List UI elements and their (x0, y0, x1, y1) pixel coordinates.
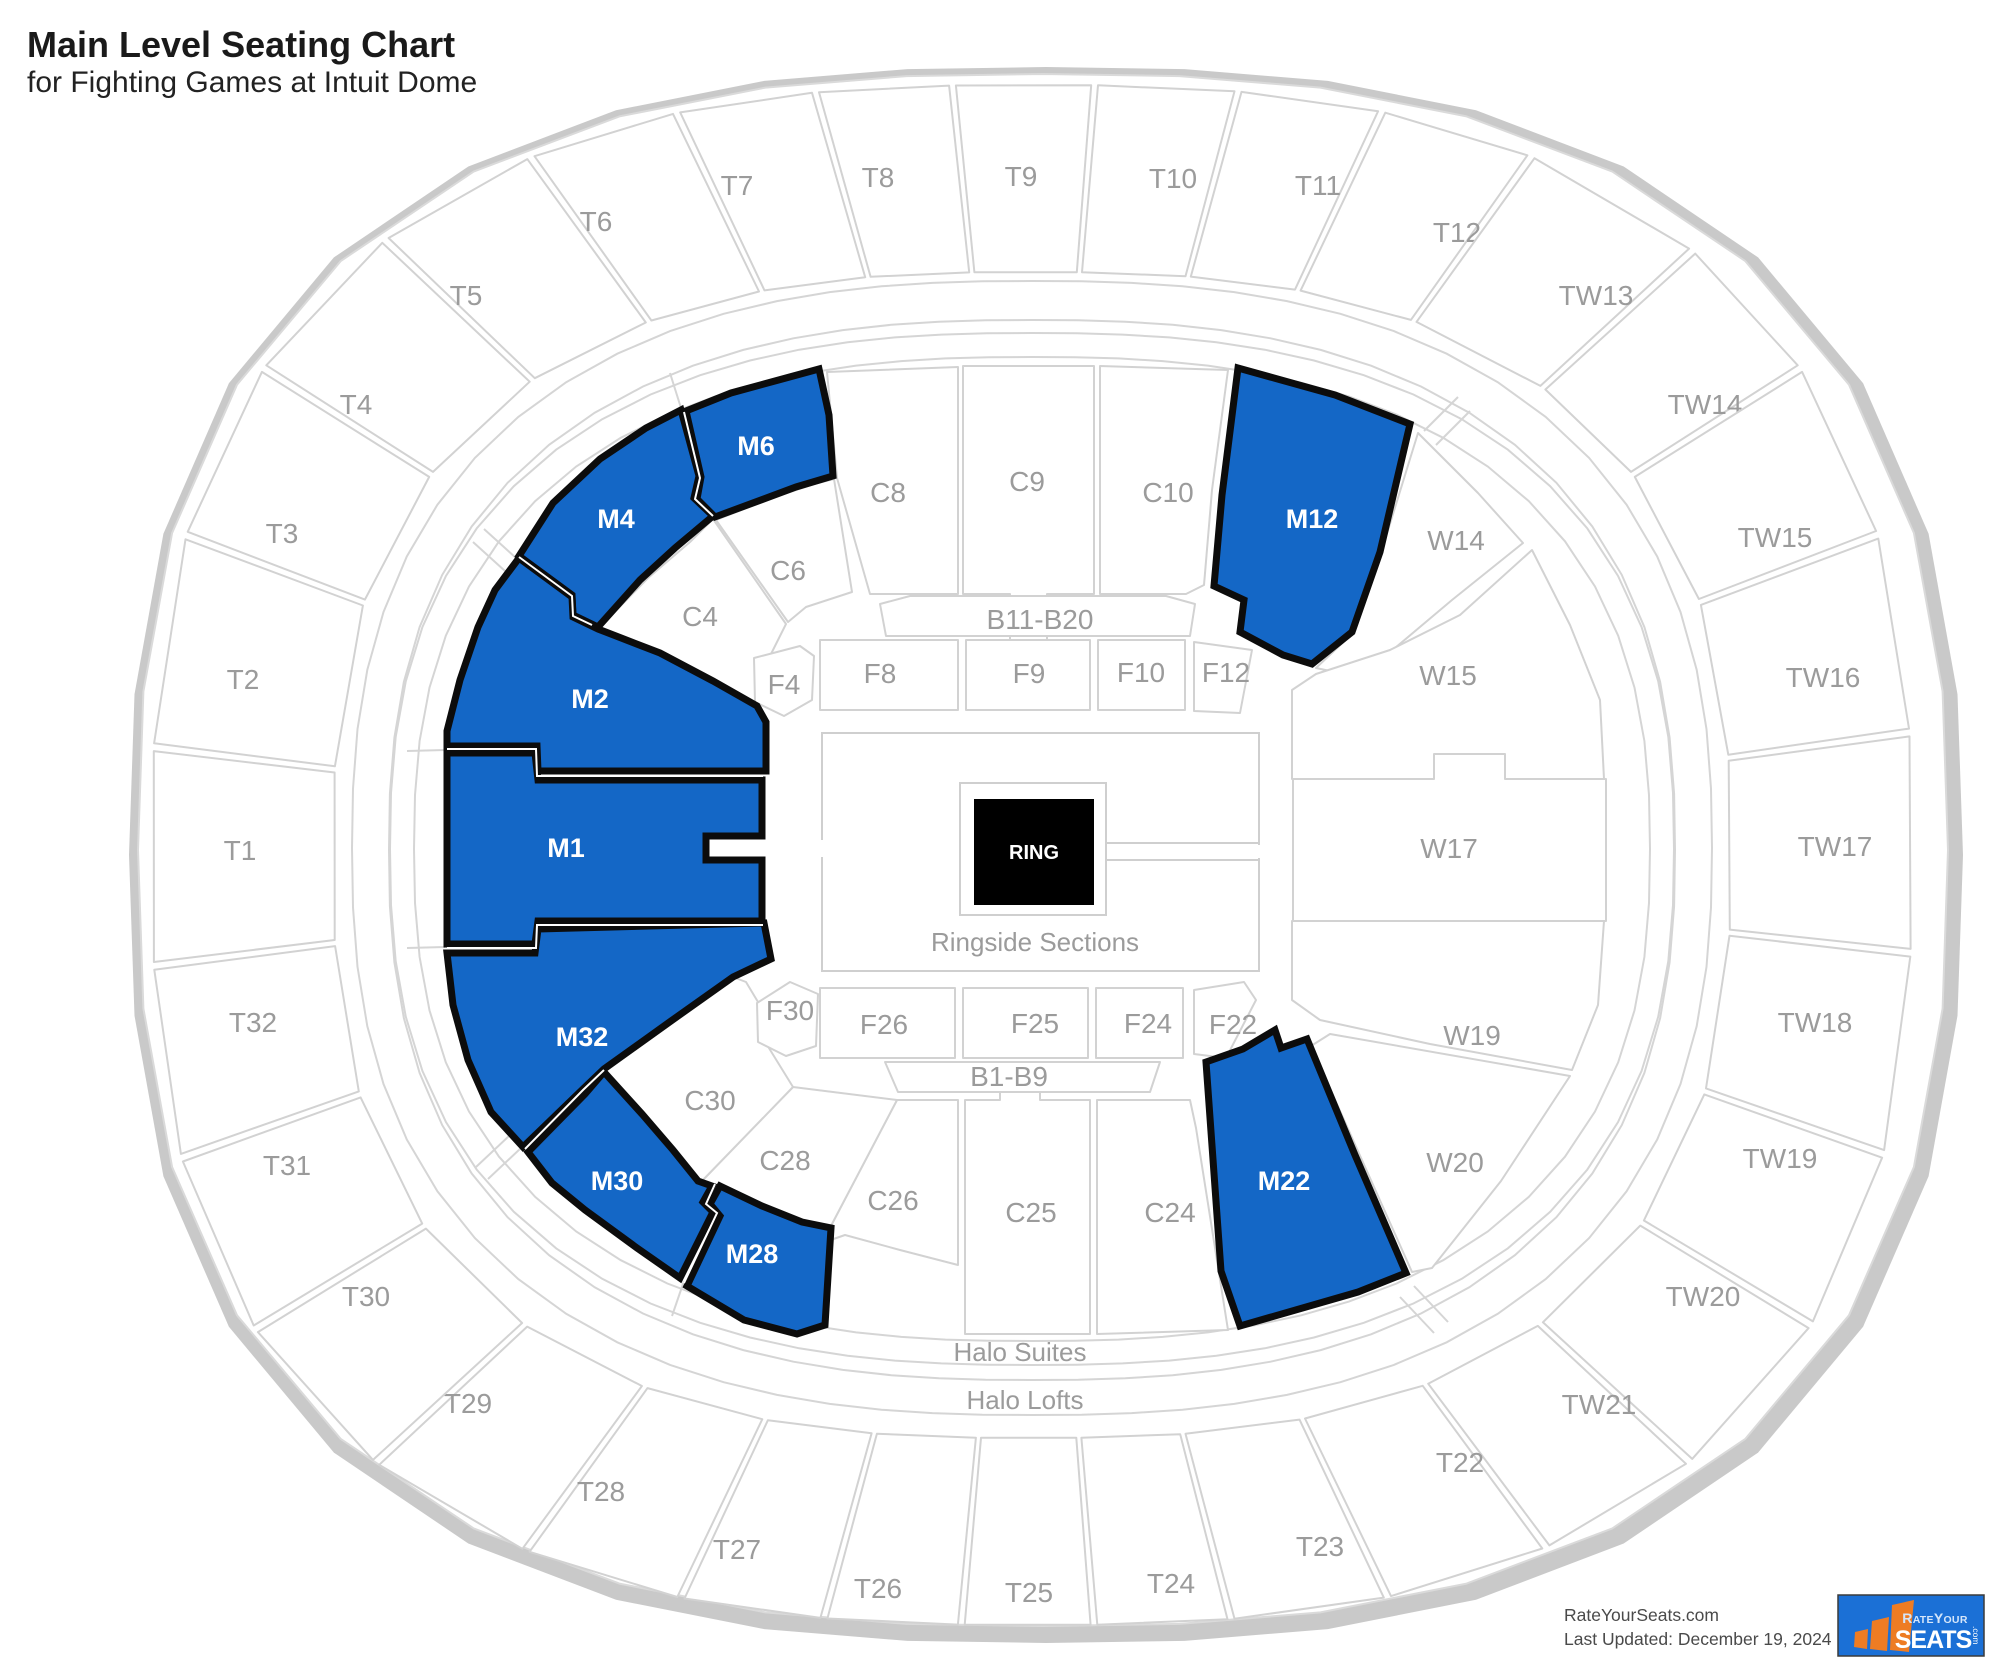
svg-text:M12: M12 (1286, 504, 1339, 534)
svg-text:TW19: TW19 (1743, 1143, 1818, 1174)
svg-text:T10: T10 (1149, 163, 1197, 194)
svg-text:W19: W19 (1443, 1020, 1501, 1051)
svg-text:Halo Suites: Halo Suites (954, 1337, 1087, 1367)
svg-text:W15: W15 (1419, 660, 1477, 691)
svg-text:W20: W20 (1426, 1147, 1484, 1178)
svg-text:T31: T31 (263, 1150, 311, 1181)
svg-text:T30: T30 (342, 1281, 390, 1312)
svg-text:SEATS: SEATS (1895, 1626, 1972, 1654)
svg-text:C28: C28 (759, 1145, 810, 1176)
svg-text:F30: F30 (766, 995, 814, 1026)
svg-text:C9: C9 (1009, 466, 1045, 497)
svg-text:T29: T29 (444, 1388, 492, 1419)
svg-text:F12: F12 (1202, 657, 1250, 688)
svg-text:.com: .com (1971, 1626, 1981, 1644)
svg-text:F8: F8 (864, 658, 897, 689)
svg-text:T11: T11 (1295, 170, 1341, 201)
svg-text:T32: T32 (229, 1007, 277, 1038)
svg-text:Ringside Sections: Ringside Sections (931, 927, 1139, 957)
svg-text:C26: C26 (867, 1185, 918, 1216)
svg-text:RateYourSeats.com: RateYourSeats.com (1564, 1605, 1719, 1625)
svg-text:M1: M1 (547, 833, 585, 863)
svg-text:T4: T4 (340, 389, 373, 420)
svg-text:F26: F26 (860, 1009, 908, 1040)
svg-text:M6: M6 (737, 431, 775, 461)
svg-text:TW13: TW13 (1559, 280, 1634, 311)
svg-text:T6: T6 (580, 206, 613, 237)
svg-text:TW18: TW18 (1778, 1007, 1853, 1038)
svg-text:W17: W17 (1420, 833, 1478, 864)
svg-text:Last Updated: December 19, 202: Last Updated: December 19, 2024 (1564, 1629, 1832, 1649)
svg-text:T26: T26 (854, 1573, 902, 1604)
svg-text:Halo Lofts: Halo Lofts (966, 1385, 1083, 1415)
svg-text:TW20: TW20 (1666, 1281, 1741, 1312)
svg-text:TW17: TW17 (1798, 831, 1873, 862)
svg-text:for Fighting Games at Intuit D: for Fighting Games at Intuit Dome (27, 66, 477, 99)
svg-text:T2: T2 (227, 664, 260, 695)
svg-text:RING: RING (1009, 842, 1059, 864)
svg-text:C30: C30 (684, 1085, 735, 1116)
svg-text:F4: F4 (768, 669, 801, 700)
svg-text:T28: T28 (577, 1476, 625, 1507)
svg-text:T27: T27 (713, 1534, 761, 1565)
svg-text:T3: T3 (266, 518, 299, 549)
svg-text:M28: M28 (726, 1239, 779, 1269)
svg-text:T23: T23 (1296, 1531, 1344, 1562)
svg-text:B1-B9: B1-B9 (970, 1061, 1048, 1092)
svg-text:M2: M2 (571, 684, 609, 714)
svg-text:F24: F24 (1124, 1008, 1172, 1039)
svg-text:T24: T24 (1147, 1568, 1195, 1599)
svg-text:F25: F25 (1011, 1008, 1059, 1039)
svg-text:T1: T1 (224, 835, 257, 866)
svg-text:F10: F10 (1117, 657, 1165, 688)
svg-text:C8: C8 (870, 477, 906, 508)
svg-text:T8: T8 (862, 162, 895, 193)
svg-text:T5: T5 (450, 280, 483, 311)
svg-text:C25: C25 (1005, 1197, 1056, 1228)
svg-text:T25: T25 (1005, 1577, 1053, 1608)
svg-text:F9: F9 (1013, 658, 1046, 689)
svg-text:B11-B20: B11-B20 (987, 604, 1094, 635)
svg-text:T9: T9 (1005, 161, 1038, 192)
svg-text:M30: M30 (591, 1166, 644, 1196)
svg-text:T22: T22 (1436, 1447, 1484, 1478)
svg-text:Main Level Seating Chart: Main Level Seating Chart (27, 24, 455, 65)
svg-text:F22: F22 (1209, 1009, 1257, 1040)
svg-text:C6: C6 (770, 555, 806, 586)
svg-text:TW16: TW16 (1786, 662, 1861, 693)
svg-text:C24: C24 (1144, 1197, 1195, 1228)
svg-text:TW15: TW15 (1738, 522, 1813, 553)
svg-text:TW21: TW21 (1562, 1389, 1637, 1420)
svg-text:M32: M32 (556, 1022, 609, 1052)
svg-text:C4: C4 (682, 601, 718, 632)
svg-text:T7: T7 (721, 170, 754, 201)
svg-text:W14: W14 (1427, 525, 1485, 556)
svg-text:C10: C10 (1142, 477, 1193, 508)
svg-text:M22: M22 (1258, 1166, 1311, 1196)
svg-text:M4: M4 (597, 504, 635, 534)
